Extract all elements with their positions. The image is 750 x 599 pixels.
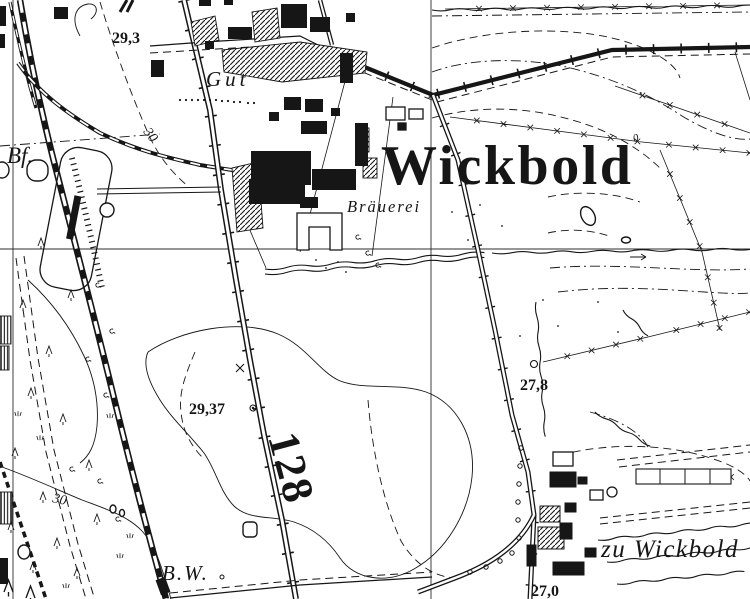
- map-canvas[interactable]: Wickbold zu Wickbold Gut Bräuerei Bf. B.…: [0, 0, 750, 599]
- stream-ditch: [265, 5, 750, 584]
- field-dots: [315, 204, 619, 337]
- garden-dot-row: [179, 99, 255, 104]
- elevation-29-37: 29,37: [189, 401, 225, 418]
- label-hamlet: zu Wickbold: [600, 536, 739, 563]
- station-loop: [37, 144, 115, 293]
- elevation-27-8: 27,8: [520, 377, 548, 394]
- elevation-29-3: 29,3: [112, 30, 140, 47]
- contour-label-30-upper: 30: [139, 124, 160, 145]
- stream-flow-arrow-icon: [630, 254, 646, 260]
- label-brewery: Bräuerei: [347, 197, 421, 216]
- label-estate: Gut: [206, 67, 250, 91]
- contour-label-30-lower: 30: [50, 491, 68, 509]
- label-railway-station: Bf.: [7, 143, 33, 168]
- label-place-main: Wickbold: [381, 135, 633, 197]
- elevation-markers: [236, 361, 538, 412]
- path-bottom: [170, 572, 432, 598]
- railway-main-line: [10, 0, 166, 599]
- topographic-map: Wickbold zu Wickbold Gut Bräuerei Bf. B.…: [0, 0, 750, 599]
- elevation-27-0: 27,0: [531, 583, 559, 599]
- label-road-number: 128: [258, 427, 324, 509]
- fence-lines: [445, 3, 750, 480]
- road-east: [335, 47, 750, 102]
- path-station: [97, 187, 221, 194]
- label-railway-keeper: B.W.: [162, 561, 209, 585]
